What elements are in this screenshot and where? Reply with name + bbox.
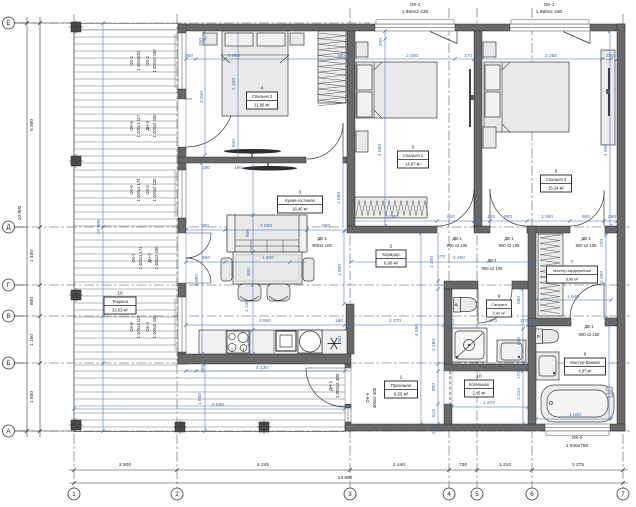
svg-text:1 650: 1 650 (29, 391, 35, 403)
svg-text:100: 100 (473, 214, 481, 220)
svg-text:2: 2 (175, 491, 179, 498)
svg-text:1 800: 1 800 (337, 264, 343, 276)
svg-text:960: 960 (202, 255, 210, 261)
svg-text:900х2 100: 900х2 100 (312, 243, 332, 248)
svg-text:2 440: 2 440 (393, 462, 405, 468)
svg-text:1 400х2 430: 1 400х2 430 (152, 178, 157, 202)
svg-text:Мастер-Ванная: Мастер-Ванная (570, 360, 600, 365)
svg-text:ОК-6: ОК-6 (129, 185, 134, 195)
svg-text:900 х2 100: 900 х2 100 (447, 243, 468, 248)
svg-text:ОК-7: ОК-7 (131, 253, 136, 263)
svg-text:Терраса: Терраса (112, 299, 129, 304)
svg-text:600: 600 (246, 338, 252, 346)
svg-text:Е: Е (6, 20, 10, 27)
svg-text:250: 250 (200, 365, 206, 373)
svg-text:180: 180 (234, 165, 242, 171)
svg-text:250: 250 (606, 53, 614, 59)
svg-text:1 940: 1 940 (569, 412, 581, 418)
svg-text:290: 290 (608, 214, 616, 220)
svg-text:170: 170 (446, 318, 454, 324)
svg-text:ДВ-1: ДВ-1 (581, 236, 591, 241)
svg-text:18,45 м²: 18,45 м² (292, 207, 309, 212)
svg-text:ДВ-1: ДВ-1 (487, 258, 497, 263)
svg-text:2 000: 2 000 (260, 223, 272, 229)
svg-text:1 000х2 400: 1 000х2 400 (335, 373, 340, 398)
svg-text:180: 180 (335, 318, 343, 324)
svg-text:1 400х2 430: 1 400х2 430 (152, 114, 157, 138)
svg-text:730: 730 (459, 462, 467, 468)
svg-text:2 500: 2 500 (119, 462, 131, 468)
svg-text:5: 5 (412, 145, 415, 151)
svg-text:5: 5 (475, 491, 479, 498)
svg-text:ОК-3: ОК-3 (145, 56, 150, 66)
svg-text:3 040: 3 040 (199, 91, 205, 103)
svg-text:Спальня 3: Спальня 3 (546, 177, 567, 182)
svg-text:4 130: 4 130 (256, 365, 268, 371)
svg-text:900 х2 100: 900 х2 100 (579, 332, 600, 337)
svg-text:1 400х520: 1 400х520 (136, 51, 141, 71)
svg-text:Санузел: Санузел (491, 302, 507, 307)
svg-text:1 100: 1 100 (244, 300, 250, 312)
svg-text:1 200: 1 200 (429, 256, 435, 268)
svg-text:900: 900 (504, 214, 512, 220)
svg-text:1 870: 1 870 (483, 400, 495, 406)
svg-text:1 400: 1 400 (29, 250, 35, 262)
svg-text:220: 220 (599, 239, 605, 247)
svg-text:ОК-4: ОК-4 (129, 56, 134, 66)
svg-text:900 х2 100: 900 х2 100 (576, 243, 597, 248)
svg-text:7: 7 (621, 491, 625, 498)
svg-text:4 690: 4 690 (603, 144, 609, 156)
svg-text:10 800: 10 800 (17, 205, 23, 220)
svg-text:4 680: 4 680 (194, 274, 200, 286)
svg-text:2,45 м²: 2,45 м² (472, 391, 486, 396)
svg-text:940: 940 (231, 139, 237, 147)
svg-text:3 900: 3 900 (228, 53, 240, 59)
svg-text:Спальня 2: Спальня 2 (252, 94, 273, 99)
svg-text:8: 8 (584, 352, 587, 358)
svg-text:1: 1 (400, 375, 403, 381)
svg-text:4 690: 4 690 (377, 144, 383, 156)
svg-text:4: 4 (261, 86, 264, 92)
svg-text:3: 3 (348, 491, 352, 498)
svg-text:1 870: 1 870 (485, 318, 497, 324)
svg-text:ОК-1: ОК-1 (544, 2, 555, 8)
svg-text:4: 4 (447, 491, 451, 498)
svg-text:200: 200 (431, 426, 437, 434)
svg-text:800: 800 (29, 297, 35, 305)
svg-text:510: 510 (431, 409, 437, 417)
svg-text:2 180: 2 180 (431, 339, 437, 351)
svg-text:170: 170 (516, 371, 522, 379)
svg-text:13 590: 13 590 (338, 475, 353, 481)
svg-text:170: 170 (464, 53, 472, 59)
svg-text:180: 180 (337, 53, 345, 59)
svg-text:950: 950 (322, 223, 330, 229)
svg-text:900: 900 (245, 229, 251, 237)
svg-text:400х2 400: 400х2 400 (372, 387, 377, 408)
svg-text:2: 2 (390, 244, 393, 250)
svg-text:10: 10 (476, 374, 482, 380)
svg-text:1 310: 1 310 (499, 462, 511, 468)
svg-text:1 960х2 430: 1 960х2 430 (536, 9, 563, 15)
svg-text:1 960х2 430: 1 960х2 430 (402, 9, 429, 15)
svg-text:Прихожая: Прихожая (391, 383, 412, 388)
svg-text:3 250: 3 250 (545, 53, 557, 59)
svg-text:15,24 м²: 15,24 м² (548, 186, 565, 191)
svg-text:Мастер-гардеробная: Мастер-гардеробная (553, 268, 591, 273)
svg-text:180: 180 (202, 165, 210, 171)
svg-text:1 690: 1 690 (336, 192, 342, 204)
svg-text:3: 3 (299, 190, 302, 196)
svg-text:200: 200 (378, 38, 384, 46)
svg-text:ДН-2: ДН-2 (147, 253, 152, 263)
svg-text:4 690: 4 690 (414, 324, 420, 336)
svg-text:2 000: 2 000 (599, 271, 605, 283)
svg-text:ОК-2: ОК-2 (572, 435, 583, 441)
svg-text:1 060: 1 060 (541, 214, 553, 220)
svg-text:3 000: 3 000 (406, 53, 418, 59)
svg-text:ДВ-1: ДВ-1 (452, 236, 462, 241)
svg-text:1 400х1 117: 1 400х1 117 (136, 315, 141, 338)
svg-text:1 150: 1 150 (29, 334, 35, 346)
svg-text:7: 7 (571, 260, 574, 266)
svg-text:950: 950 (201, 223, 209, 229)
svg-text:ДН-3: ДН-3 (145, 121, 150, 131)
svg-text:2 275: 2 275 (572, 462, 584, 468)
svg-text:100: 100 (487, 214, 495, 220)
svg-text:1 400х1 117: 1 400х1 117 (136, 114, 141, 137)
svg-text:1 400х2 430: 1 400х2 430 (154, 246, 159, 270)
svg-text:10 800: 10 800 (96, 219, 102, 234)
svg-text:ОК-5: ОК-5 (129, 121, 134, 131)
svg-text:2 000: 2 000 (386, 214, 398, 220)
svg-text:10: 10 (117, 291, 123, 297)
svg-text:200: 200 (198, 38, 204, 46)
svg-text:250: 250 (185, 53, 193, 59)
svg-text:6: 6 (555, 169, 558, 175)
svg-text:1 650: 1 650 (197, 393, 203, 405)
svg-text:9: 9 (498, 294, 501, 300)
svg-text:190: 190 (337, 336, 343, 344)
svg-text:900 х2 100: 900 х2 100 (482, 266, 503, 271)
svg-text:830: 830 (516, 337, 522, 345)
svg-text:ОК-3: ОК-3 (145, 322, 150, 332)
svg-text:1 600: 1 600 (262, 255, 274, 261)
svg-text:5 000: 5 000 (29, 119, 35, 131)
svg-text:14,07 м²: 14,07 м² (405, 162, 422, 167)
svg-text:3,88 м²: 3,88 м² (566, 277, 579, 282)
svg-text:В: В (6, 313, 10, 320)
svg-text:6,55 м²: 6,55 м² (394, 392, 409, 397)
svg-text:1 400х2 430: 1 400х2 430 (152, 315, 157, 339)
svg-text:6: 6 (530, 491, 534, 498)
svg-text:4 490: 4 490 (453, 255, 465, 261)
svg-text:Коридор: Коридор (382, 252, 400, 257)
svg-text:ДВ-1: ДВ-1 (317, 236, 327, 241)
svg-text:1 400х2 430: 1 400х2 430 (152, 49, 157, 73)
svg-text:Котельная: Котельная (469, 382, 489, 387)
svg-text:6 630: 6 630 (212, 402, 224, 408)
svg-text:900 х2 100: 900 х2 100 (499, 243, 520, 248)
svg-text:ОК-1: ОК-1 (410, 2, 421, 8)
svg-text:900: 900 (582, 214, 590, 220)
svg-text:1 940х750: 1 940х750 (566, 443, 589, 449)
svg-text:1 400х1 174: 1 400х1 174 (138, 246, 143, 270)
svg-text:32,03 м²: 32,03 м² (112, 308, 129, 313)
svg-text:ДН-1: ДН-1 (328, 380, 333, 391)
svg-text:980: 980 (516, 296, 522, 304)
svg-text:170: 170 (437, 254, 445, 260)
svg-text:ОК-9: ОК-9 (365, 393, 370, 403)
svg-text:900: 900 (447, 214, 455, 220)
svg-text:170: 170 (520, 318, 528, 324)
svg-text:ДВ-1: ДВ-1 (504, 236, 514, 241)
svg-text:4 245: 4 245 (257, 462, 269, 468)
svg-text:2 270: 2 270 (389, 318, 401, 324)
svg-text:ОК-3: ОК-3 (145, 185, 150, 195)
svg-text:ДВ-1: ДВ-1 (584, 324, 594, 329)
svg-text:11,86 м²: 11,86 м² (254, 103, 270, 108)
svg-text:3 900: 3 900 (259, 318, 271, 324)
svg-text:800: 800 (246, 268, 252, 276)
svg-text:4,87 м²: 4,87 м² (578, 369, 592, 374)
svg-text:1 940: 1 940 (567, 294, 579, 300)
svg-text:Кухня-гостиная: Кухня-гостиная (285, 198, 315, 203)
svg-text:1: 1 (72, 491, 76, 498)
svg-text:2,42 м²: 2,42 м² (493, 311, 507, 316)
svg-text:ОК-8: ОК-8 (129, 322, 134, 332)
svg-text:1 310: 1 310 (516, 388, 522, 400)
svg-text:2 100: 2 100 (231, 78, 237, 90)
svg-text:Спальня 2: Спальня 2 (403, 153, 424, 158)
svg-text:800: 800 (431, 383, 437, 391)
svg-text:6,88 м²: 6,88 м² (384, 261, 399, 266)
svg-text:Б: Б (6, 360, 10, 367)
svg-text:1 400х1 174: 1 400х1 174 (136, 178, 141, 202)
